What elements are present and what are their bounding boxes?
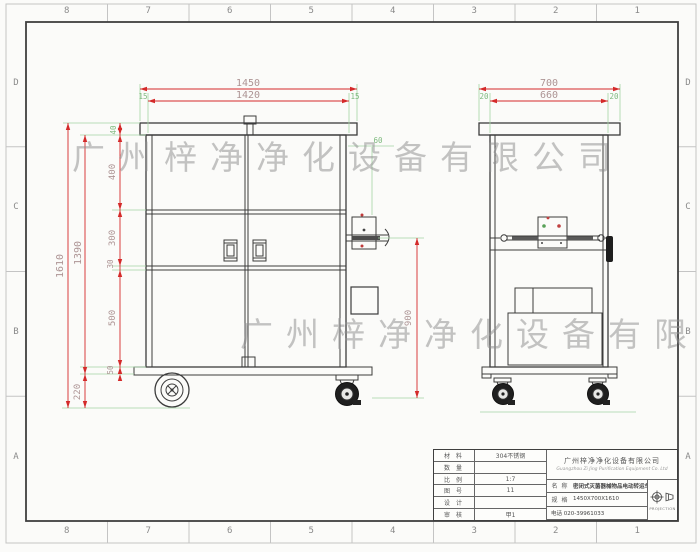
- table-row: 材 料 304不锈钢: [434, 450, 546, 462]
- zone-row-b-left: B: [8, 327, 24, 337]
- dim-overall-height: 1610: [55, 254, 66, 278]
- dim-side-overall-depth: 700: [540, 78, 558, 89]
- side-caster-left: [493, 378, 516, 405]
- zone-col-8-bottom: 8: [57, 526, 77, 536]
- zone-row-a-left: A: [8, 452, 24, 462]
- zone-row-d-left: D: [8, 78, 24, 88]
- table-row: 审 核 甲1: [434, 509, 546, 520]
- zone-col-5-bottom: 5: [301, 526, 321, 536]
- review-value: 甲1: [475, 509, 546, 520]
- dim-upper-section: 400: [108, 164, 118, 180]
- quantity-value: [475, 462, 546, 473]
- company-cell: 广州梓净净化设备有限公司 Guangzhou Zi Jing Purificat…: [547, 450, 677, 480]
- projection-box: PROJECTION: [647, 480, 677, 520]
- material-value: 304不锈钢: [475, 450, 546, 461]
- side-handle-fitting: [346, 214, 389, 250]
- zone-row-d-right: D: [680, 78, 696, 88]
- indicator-green: [542, 224, 546, 228]
- dim-body-height: 1390: [73, 241, 84, 265]
- front-wheel-left: [155, 373, 189, 407]
- product-name-label: 名 称: [547, 481, 573, 490]
- phone-value: 电话 020-39961033: [547, 509, 651, 517]
- zone-row-a-right: A: [680, 452, 696, 462]
- front-caster-right: [336, 375, 362, 406]
- zone-col-6: 6: [220, 6, 240, 16]
- company-name-en: Guangzhou Zi Jing Purification Equipment…: [556, 467, 667, 472]
- spec-label: 规 格: [547, 495, 573, 504]
- dimension-text: 1450 1420 700 660 1610 1390 400 300 30 5…: [55, 78, 558, 400]
- dim-side-left-margin: 20: [479, 92, 489, 101]
- zone-col-3-bottom: 3: [464, 526, 484, 536]
- design-label: 设 计: [434, 497, 475, 508]
- projection-label: PROJECTION: [649, 506, 675, 511]
- scale-label: 比 例: [434, 474, 475, 485]
- dim-base-plate: 50: [106, 365, 115, 375]
- drawing-no-value: 11: [475, 485, 546, 496]
- scale-value: 1:7: [475, 474, 546, 485]
- side-electrical-box: [351, 287, 378, 314]
- dim-front-right-margin: 15: [350, 92, 359, 101]
- side-view-drawing: [479, 123, 620, 405]
- dim-side-inner-depth: 660: [540, 90, 558, 101]
- dim-middle-section: 300: [108, 230, 118, 246]
- zone-col-6-bottom: 6: [220, 526, 240, 536]
- zone-col-7-bottom: 7: [138, 526, 158, 536]
- dim-side-right-margin: 20: [609, 92, 619, 101]
- dim-lower-section: 500: [108, 310, 118, 326]
- table-row: 图 号 11: [434, 485, 546, 497]
- title-block: 材 料 304不锈钢 数 量 比 例 1:7 图 号 11 设 计 审 核 甲1…: [433, 449, 678, 521]
- company-name: 广州梓净净化设备有限公司: [564, 456, 660, 466]
- door-latch: [606, 236, 613, 262]
- brake-lever: [353, 400, 361, 405]
- dim-shelf-gap: 30: [106, 259, 115, 269]
- door-handle-left: [224, 240, 237, 261]
- dim-lid-thickness: 40: [109, 125, 118, 135]
- dim-front-left-margin: 15: [138, 92, 147, 101]
- zone-row-c-left: C: [8, 202, 24, 212]
- zone-col-3: 3: [464, 6, 484, 16]
- dimension-lines: [68, 89, 620, 408]
- dim-handle-offset: 60: [373, 136, 383, 145]
- dim-door-height: 900: [404, 310, 414, 326]
- table-row: 设 计: [434, 497, 546, 509]
- title-block-identity: 广州梓净净化设备有限公司 Guangzhou Zi Jing Purificat…: [547, 450, 677, 520]
- zone-col-5: 5: [301, 6, 321, 16]
- drawer-box: [515, 288, 592, 313]
- zone-col-8: 8: [57, 6, 77, 16]
- control-box: [538, 217, 567, 248]
- projection-symbol-icon: [650, 490, 676, 504]
- table-row: 比 例 1:7: [434, 474, 546, 486]
- zone-col-4: 4: [383, 6, 403, 16]
- dim-front-overall-width: 1450: [236, 78, 260, 89]
- zone-col-4-bottom: 4: [383, 526, 403, 536]
- dim-wheel-height: 220: [73, 384, 83, 400]
- door-handle-right: [253, 240, 266, 261]
- product-name-value: 密闭式灭菌器械物品电动转运车: [573, 482, 650, 490]
- drawing-sheet: 1450 1420 700 660 1610 1390 400 300 30 5…: [0, 0, 700, 548]
- front-view-drawing: [134, 116, 389, 407]
- zone-col-2-bottom: 2: [546, 526, 566, 536]
- design-value: [475, 497, 546, 508]
- quantity-label: 数 量: [434, 462, 475, 473]
- indicator-red: [557, 224, 561, 228]
- zone-col-2: 2: [546, 6, 566, 16]
- zone-col-7: 7: [138, 6, 158, 16]
- side-caster-right: [588, 378, 611, 405]
- zone-col-1-bottom: 1: [627, 526, 647, 536]
- zone-row-b-right: B: [680, 327, 696, 337]
- motor-housing: [508, 313, 602, 365]
- zone-row-c-right: C: [680, 202, 696, 212]
- zone-col-1: 1: [627, 6, 647, 16]
- spec-value: 1450X700X1610: [573, 496, 647, 502]
- table-row: 数 量: [434, 462, 546, 474]
- threaded-rod: [490, 235, 612, 241]
- material-label: 材 料: [434, 450, 475, 461]
- review-label: 审 核: [434, 509, 475, 520]
- drawing-no-label: 图 号: [434, 485, 475, 496]
- title-block-attributes: 材 料 304不锈钢 数 量 比 例 1:7 图 号 11 设 计 审 核 甲1: [434, 450, 547, 520]
- dim-front-inner-width: 1420: [236, 90, 260, 101]
